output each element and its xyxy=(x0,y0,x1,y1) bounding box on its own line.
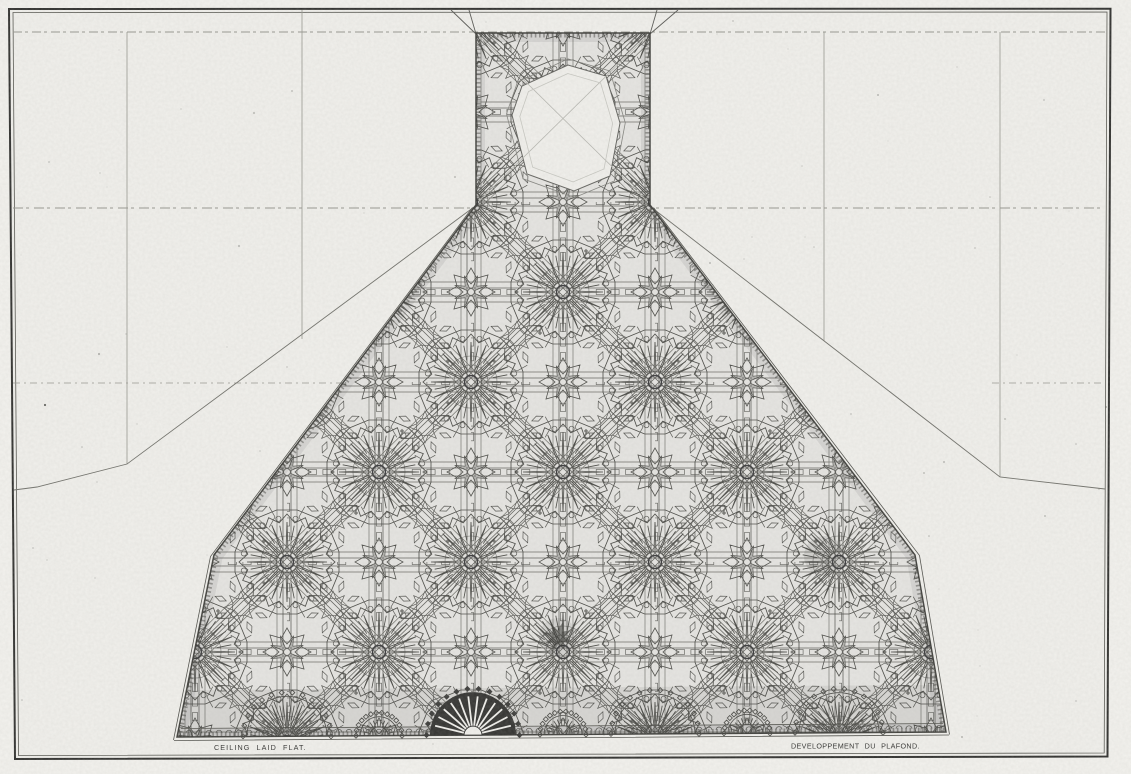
svg-text:DEVELOPPEMENT DU PLAFOND.: DEVELOPPEMENT DU PLAFOND. xyxy=(791,742,920,751)
svg-text:CEILING LAID FLAT.: CEILING LAID FLAT. xyxy=(214,743,307,752)
